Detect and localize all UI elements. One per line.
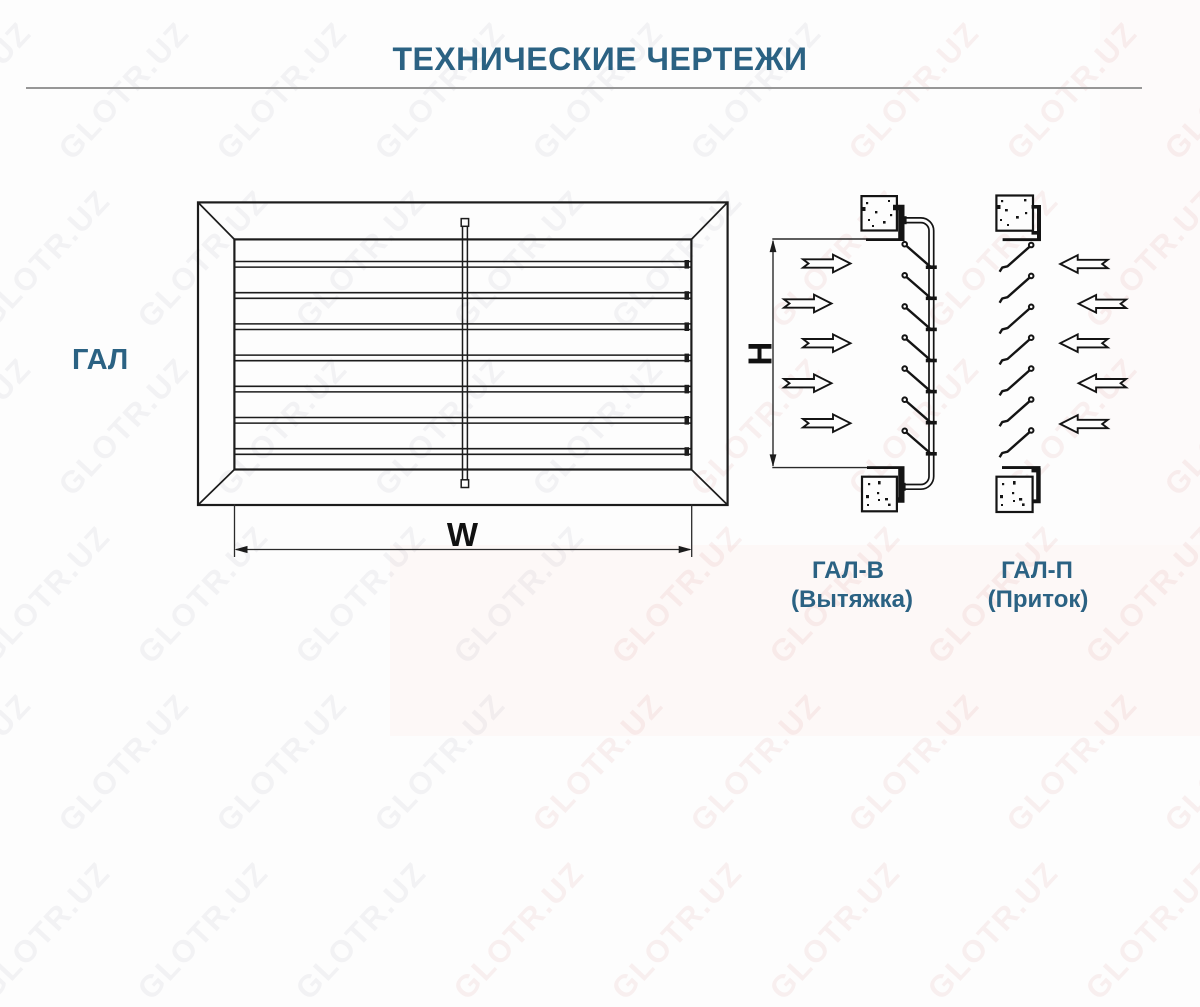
svg-text:W: W xyxy=(447,516,479,553)
svg-text:H: H xyxy=(742,342,779,366)
